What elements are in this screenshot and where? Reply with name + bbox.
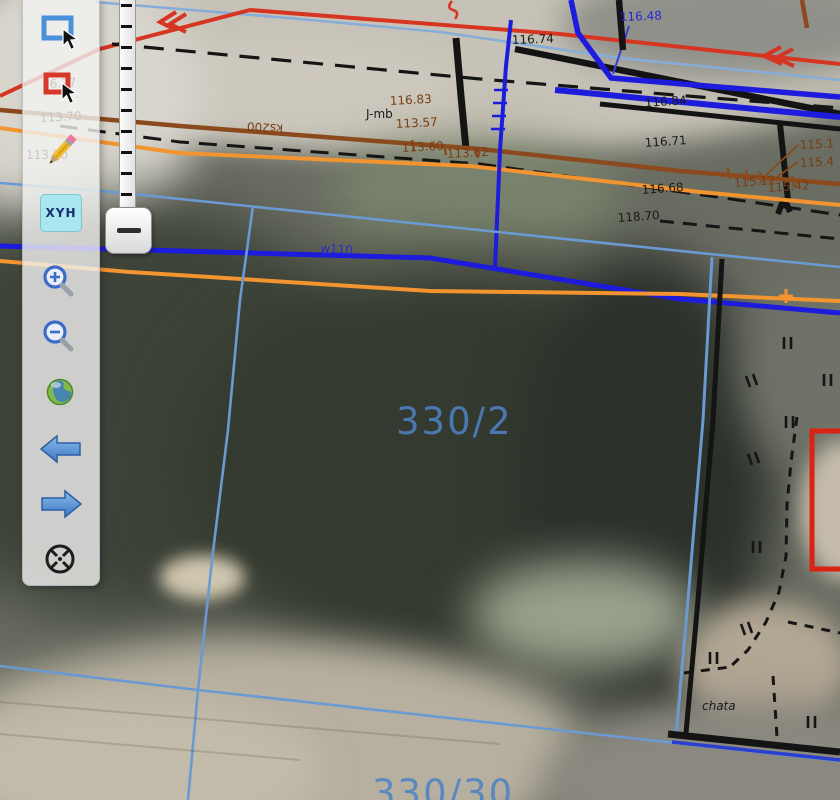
orange-utility-line — [0, 261, 840, 301]
arrow-left-icon — [38, 434, 84, 466]
position-crosshair-button[interactable] — [35, 536, 87, 585]
xyh-label: XYH — [40, 194, 82, 232]
red-symbol — [449, 1, 457, 19]
next-view-button[interactable] — [35, 480, 87, 529]
parcel-line — [95, 2, 840, 80]
utility-label: 113.60 — [401, 139, 444, 155]
map-toolbar: XYH — [22, 0, 100, 586]
brown-stub — [802, 0, 807, 28]
pipe-label: w110 — [320, 241, 354, 257]
utility-label: 113.62 — [446, 145, 489, 161]
black-dashed-edge — [730, 417, 797, 667]
red-building-outline — [812, 431, 840, 569]
elevation-label: 118.70 — [617, 208, 660, 225]
elevation-label: 116.84 — [644, 93, 687, 110]
red-rectangle-select-icon — [39, 66, 83, 110]
select-rectangle-red-button[interactable] — [35, 63, 87, 112]
zoom-out-button[interactable] — [35, 314, 87, 363]
magnifier-plus-icon — [39, 262, 83, 306]
full-extent-button[interactable] — [35, 370, 87, 419]
field-texture — [0, 702, 500, 760]
blue-rectangle-select-icon — [39, 11, 83, 55]
zoom-slider-handle[interactable] — [105, 207, 152, 254]
zoom-in-button[interactable] — [35, 259, 87, 308]
elevation-label: 116.68 — [641, 180, 684, 197]
utility-label: 115.42 — [767, 178, 810, 195]
black-dashed-edge — [773, 676, 777, 737]
black-pole — [456, 38, 466, 149]
crosshair-x-icon — [39, 538, 83, 582]
parcel-line — [188, 206, 253, 800]
gis-viewer-screen: 116.74 116.48 116.84 116.71 116.68 118.7… — [0, 0, 840, 800]
water-line-w110 — [0, 246, 840, 313]
utility-label: 116.83 — [389, 92, 432, 108]
arrow-right-icon — [38, 489, 84, 521]
globe-icon — [39, 372, 83, 416]
red-arrow-icon — [160, 12, 186, 32]
elevation-label: 116.74 — [512, 32, 554, 47]
parcel-number-label: 330/30 — [372, 772, 514, 800]
building-label: chata — [702, 699, 736, 713]
select-rectangle-blue-button[interactable] — [35, 8, 87, 57]
utility-label: 115.4 — [799, 154, 834, 170]
parcel-number-label: 330/2 — [396, 400, 513, 443]
red-arrow-icon — [764, 47, 794, 66]
pipe-label: ks200 — [246, 119, 283, 135]
orange-plus-mark — [779, 289, 793, 303]
black-dashed-line — [60, 126, 840, 215]
utility-label: 113.57 — [395, 115, 438, 131]
zoom-slider-track[interactable] — [119, 0, 136, 217]
black-dashed-line — [660, 221, 840, 239]
magnifier-minus-icon — [39, 317, 83, 361]
elevation-label: 116.71 — [644, 133, 687, 150]
minus-icon — [117, 228, 141, 233]
elevation-label: 116.48 — [620, 9, 662, 24]
pencil-icon — [39, 129, 83, 173]
black-dashed-edge — [788, 622, 840, 633]
utility-label: 115.1 — [799, 136, 834, 152]
xyh-button[interactable]: XYH — [35, 188, 87, 237]
previous-view-button[interactable] — [35, 425, 87, 474]
draw-button[interactable] — [35, 127, 87, 176]
black-pole — [619, 0, 623, 50]
utility-label: J-mb — [365, 107, 393, 121]
